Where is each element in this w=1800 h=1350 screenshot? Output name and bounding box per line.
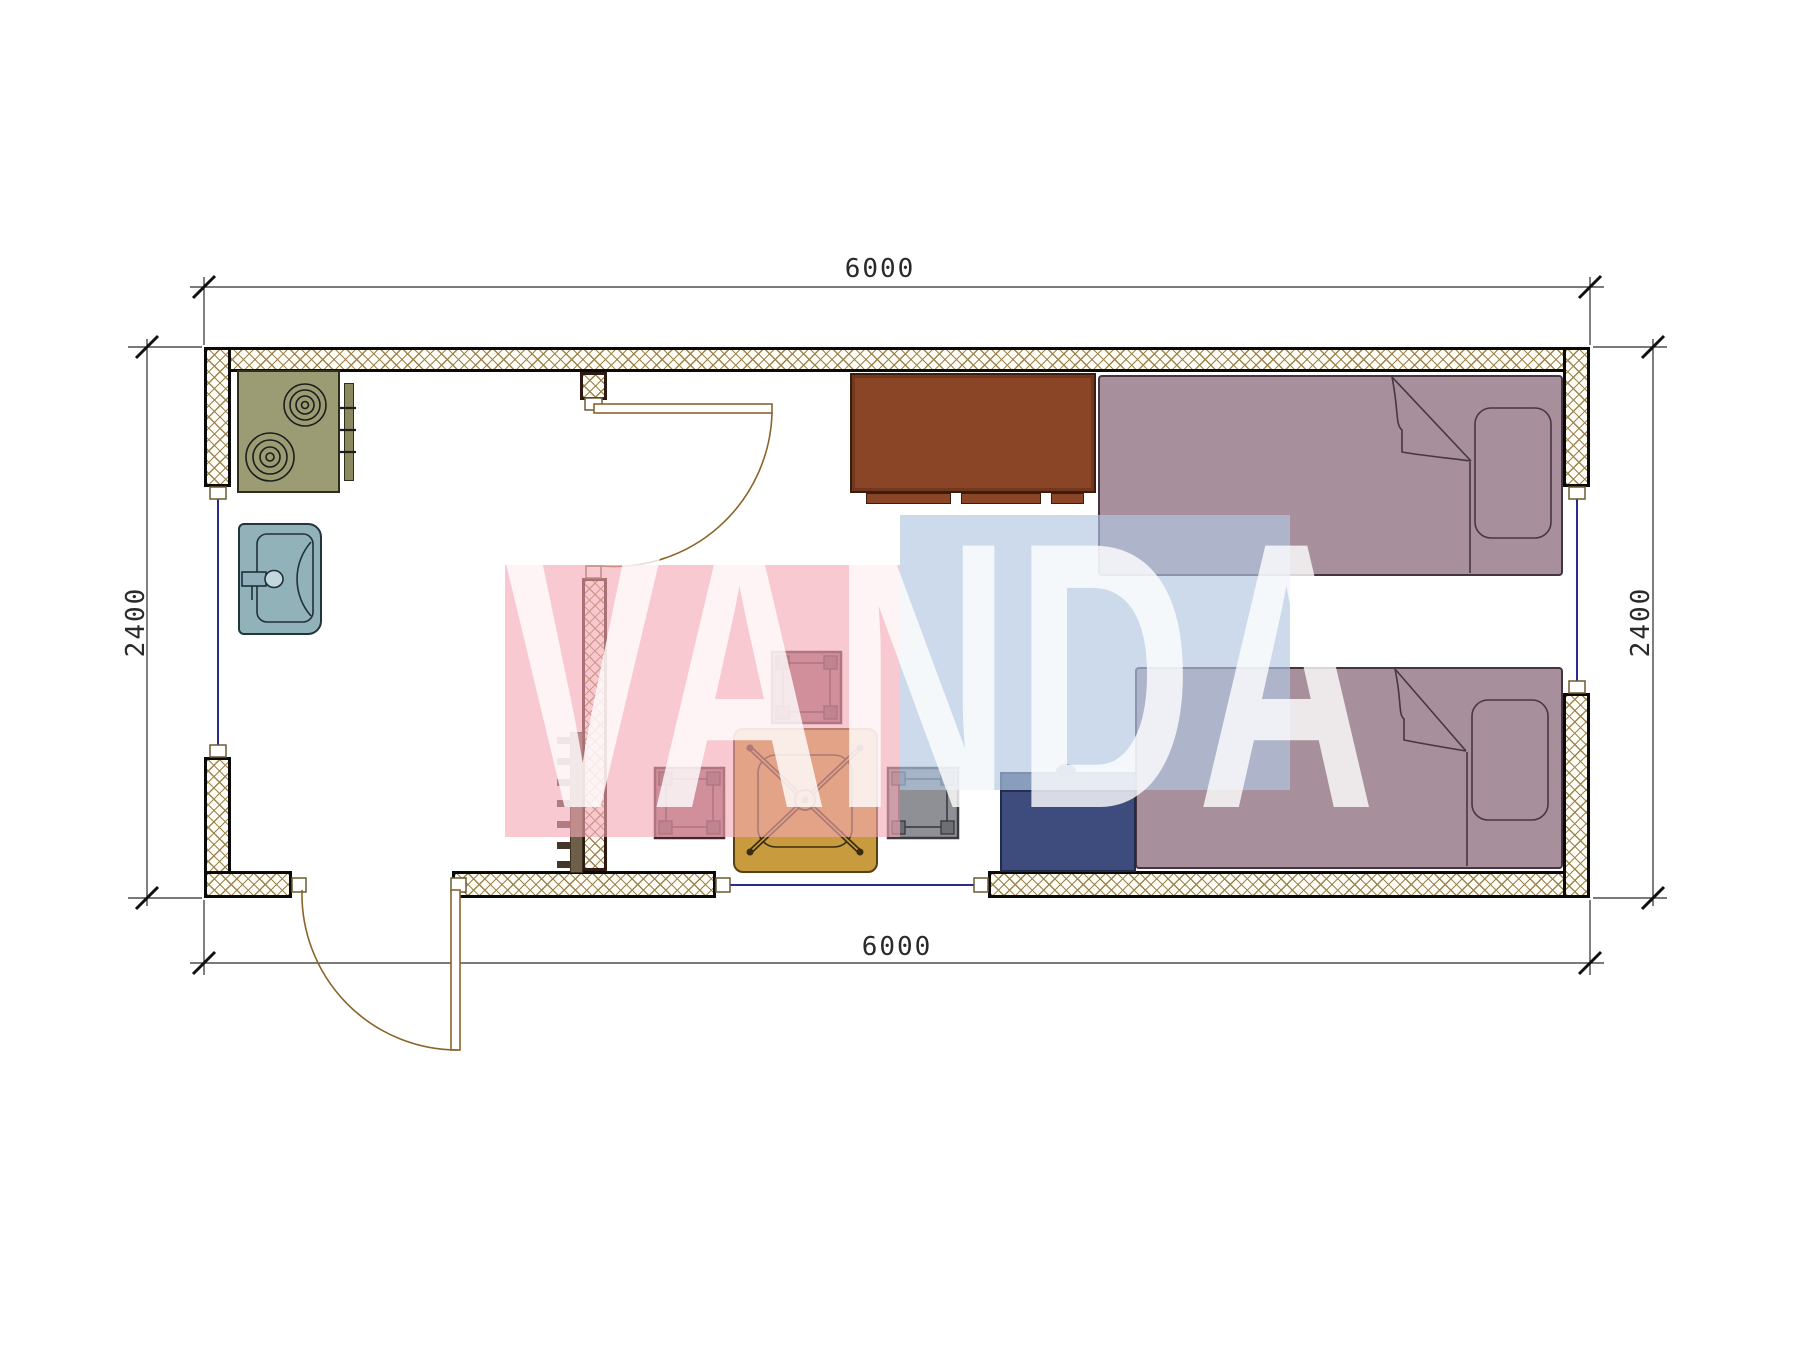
interior-door-leaf (594, 404, 772, 413)
dimension-left: 2400 (121, 522, 151, 722)
dimension-top: 6000 (780, 254, 980, 284)
bed-top-pillow (1475, 408, 1551, 538)
watermark-text: VANDA (500, 486, 1379, 866)
floor-plan-canvas: 6000 6000 2400 2400 VANDA (0, 0, 1800, 1350)
bed-bottom-pillow (1472, 700, 1548, 820)
bed-bottom-details (1395, 669, 1548, 866)
entry-door-swing-arc (302, 890, 458, 1050)
sink-basin (242, 534, 313, 622)
entry-door-leaf (451, 890, 460, 1050)
bed-bottom-blanket-fold (1395, 669, 1466, 751)
bed-top-details (1392, 377, 1551, 573)
entry-door (302, 890, 460, 1050)
bed-top-blanket-fold (1392, 377, 1471, 461)
dimension-right: 2400 (1626, 522, 1656, 722)
stove-burners (246, 384, 356, 481)
dimension-bottom: 6000 (797, 932, 997, 962)
